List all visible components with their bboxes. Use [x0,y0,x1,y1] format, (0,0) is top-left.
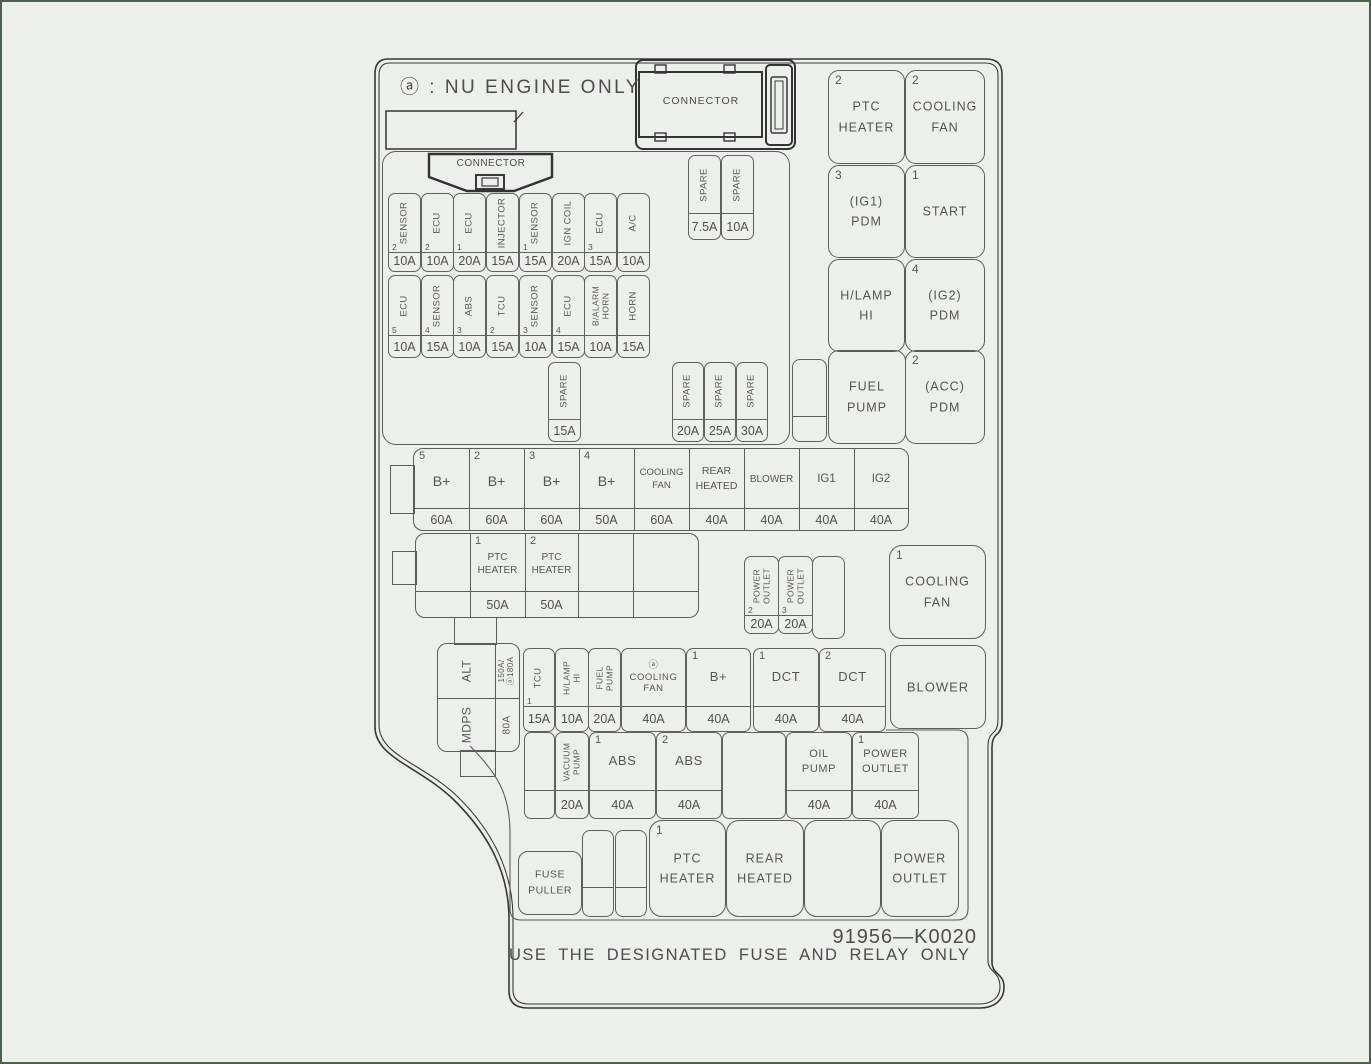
fuse-injector: INJECTOR 15A [486,193,519,272]
fuse-ecu-1: ECU1 20A [453,193,486,272]
empty-slot [615,830,647,917]
mdps-amp: 80A [501,715,512,734]
fuse-sensor-3: SENSOR3 10A [519,275,552,358]
spare-fuse-10a: SPARE 10A [721,155,754,240]
empty-relay-slot [804,820,881,917]
fuse-abs-2: 2 ABS 40A [656,732,722,819]
fuse-ecu-4: ECU4 15A [552,275,585,358]
bplus-fuse-block: 5 B+ 60A 2 B+ 60A 3 B+ 60A 4 B+ 50A COOL… [413,448,909,531]
relay-cooling-fan-1: 1 COOLING FAN [889,545,986,639]
fuse-bplus-1: 1 B+ 40A [686,648,751,732]
top-connector-label: CONNECTOR [642,95,760,107]
fuse-dct-2: 2 DCT 40A [819,648,886,732]
fuse-tcu-2: TCU2 15A [486,275,519,358]
relay-cooling-fan-2: 2 COOLING FAN [905,70,985,164]
spare-fuse-7-5a: SPARE 7.5A [688,155,721,240]
relay-acc-pdm: 2 (ACC) PDM [905,350,985,444]
fuse-tcu-1: TCU1 15A [523,648,555,732]
fuse-ign-coil: IGN COIL 20A [552,193,585,272]
alt-block-connector-top [454,617,497,645]
spare-fuse-20a: SPARE 20A [672,362,704,442]
fuse-box-diagram: ⓐ : NU ENGINE ONLY CONNECTOR CONNECTOR S… [0,0,1371,1064]
alt-block-connector-bottom [460,750,496,777]
fuse-abs-1: 1 ABS 40A [589,732,656,819]
fuse-abs-3: ABS3 10A [453,275,486,358]
fuse-vacuum-pump: VACUUM PUMP 20A [555,732,589,819]
relay-power-outlet: POWER OUTLET [881,820,959,917]
top-connector-latch-core [775,81,783,129]
fuse-cooling-fan-nu: ⓐ COOLING FAN 40A [621,648,686,732]
fuse-puller: FUSE PULLER [518,851,582,915]
ptc-block-tab [392,551,417,585]
fuse-ac: A/C 10A [617,193,650,272]
spare-fuse-25a: SPARE 25A [704,362,736,442]
relay-hlamp-hi: H/LAMP HI [828,259,905,352]
fuse-burglar-alarm-horn: B/ALARM HORN 10A [584,275,617,358]
fuse-hlamp-hi: H/LAMP HI 10A [555,648,589,732]
mdps-label: MDPS [460,706,473,742]
empty-fuse-slot [812,556,845,639]
empty-fuse-cell [722,732,786,819]
relay-ig1-pdm: 3 (IG1) PDM [828,165,905,258]
fuse-sensor-1: SENSOR1 15A [519,193,552,272]
fuse-power-outlet-3: POWER OUTLET3 20A [778,556,813,634]
fuse-power-outlet-2: POWER OUTLET2 20A [744,556,779,634]
relay-ptc-heater-2: 2 PTC HEATER [828,70,905,164]
ptc-heater-fuse-block: 1 PTC HEATER 50A 2 PTC HEATER 50A [415,533,699,618]
fuse-power-outlet-1: 1 POWER OUTLET 40A [852,732,919,819]
inner-connector-label: CONNECTOR [431,158,551,169]
empty-slot [792,359,827,442]
fuse-fuel-pump: FUEL PUMP 20A [588,648,621,732]
empty-fuse-cell [524,732,555,819]
engine-note: ⓐ : NU ENGINE ONLY [400,72,641,99]
top-connector-latch-inner [771,77,787,133]
callout-box [386,111,516,149]
fuse-sensor-4: SENSOR4 15A [421,275,454,358]
fuse-ecu-3: ECU3 15A [584,193,617,272]
relay-fuel-pump: FUEL PUMP [828,350,906,444]
bplus-block-tab [390,465,415,514]
fuse-dct-1: 1 DCT 40A [753,648,819,732]
alt-label: ALT [460,660,473,682]
relay-blower: BLOWER [890,645,986,729]
warning-text: USE THE DESIGNATED FUSE AND RELAY ONLY [509,946,970,965]
relay-rear-heated: REAR HEATED [726,820,804,917]
spare-fuse-15a: SPARE 15A [548,362,581,442]
fuse-ecu-5: ECU5 10A [388,275,421,358]
fuse-oil-pump: OIL PUMP 40A [786,732,852,819]
relay-ptc-heater-1: 1 PTC HEATER [649,820,726,917]
relay-ig2-pdm: 4 (IG2) PDM [905,259,985,352]
empty-slot [582,830,614,917]
fuse-sensor-2: SENSOR2 10A [388,193,421,272]
spare-fuse-30a: SPARE 30A [736,362,768,442]
fuse-ecu-2: ECU2 10A [421,193,454,272]
relay-start: 1 START [905,165,985,258]
alt-amp: 150A/ ⓐ180A [498,657,516,686]
fuse-horn: HORN 15A [617,275,650,358]
alt-mdps-block: ALT 150A/ ⓐ180A MDPS 80A [437,643,520,752]
